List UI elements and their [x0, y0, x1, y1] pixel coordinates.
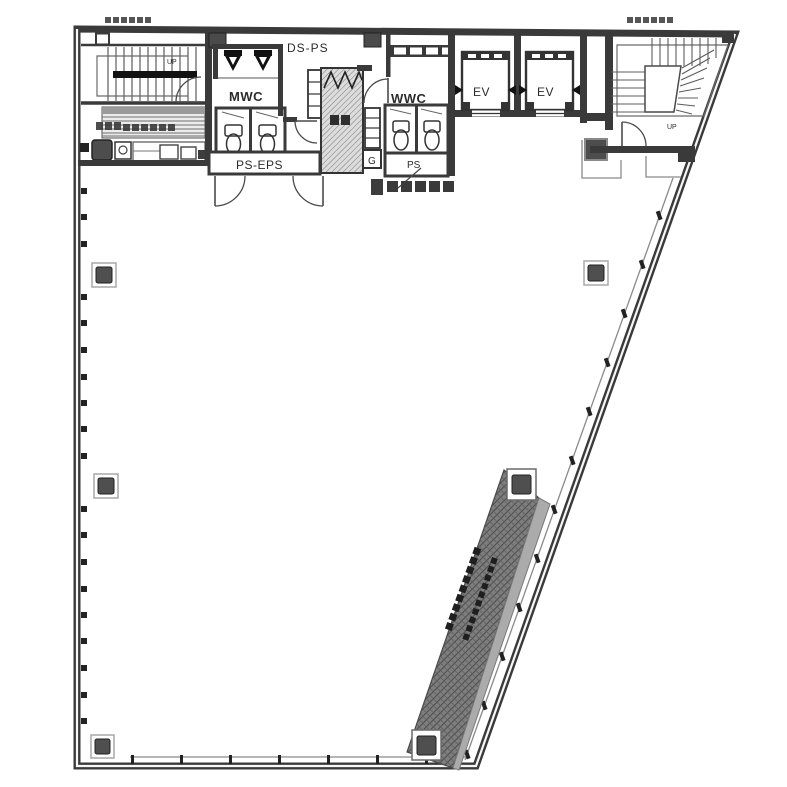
svg-text:UP: UP [667, 124, 677, 131]
svg-text:G: G [368, 156, 376, 167]
svg-text:DS-PS: DS-PS [287, 41, 329, 55]
svg-text:EV: EV [537, 85, 554, 99]
svg-text:MWC: MWC [229, 89, 263, 104]
svg-text:PS-EPS: PS-EPS [236, 158, 283, 172]
svg-text:EV: EV [473, 85, 490, 99]
svg-text:UP: UP [167, 59, 177, 66]
